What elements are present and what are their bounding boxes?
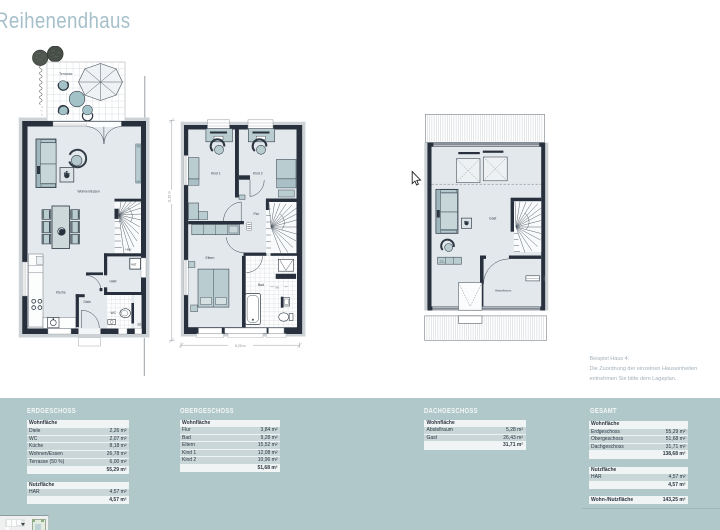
svg-text:Kind 1: Kind 1 xyxy=(211,172,221,176)
svg-text:11,30 m: 11,30 m xyxy=(168,191,172,203)
svg-text:Eltern: Eltern xyxy=(206,256,215,260)
svg-text:Diele: Diele xyxy=(84,300,92,304)
svg-text:HKV: HKV xyxy=(126,248,132,252)
svg-text:Küche: Küche xyxy=(56,291,66,295)
svg-text:Flur: Flur xyxy=(254,212,261,216)
svg-text:Kind 2: Kind 2 xyxy=(253,172,263,176)
svg-text:Terrasse: Terrasse xyxy=(59,72,72,76)
svg-text:Bad: Bad xyxy=(258,283,264,287)
svg-text:HAR: HAR xyxy=(110,280,118,284)
svg-text:W|T: W|T xyxy=(131,263,137,267)
svg-text:Wohnen/Essen: Wohnen/Essen xyxy=(78,190,100,194)
svg-text:Abstellraum: Abstellraum xyxy=(495,288,512,292)
svg-text:HWV: HWV xyxy=(543,277,545,282)
svg-text:Gast: Gast xyxy=(489,217,496,221)
svg-text:6,20 m: 6,20 m xyxy=(235,344,246,348)
svg-text:WC: WC xyxy=(111,311,117,315)
